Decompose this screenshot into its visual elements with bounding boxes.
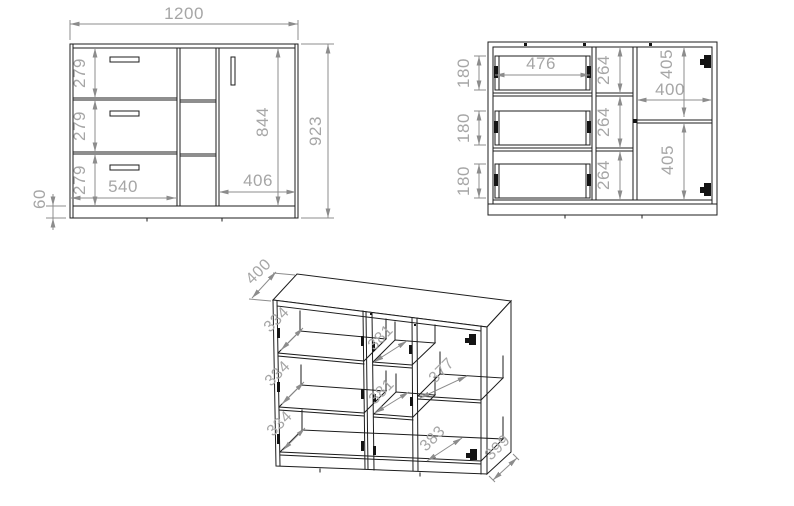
- drawer-slide-icon: [494, 121, 498, 133]
- internal-view: 180 180 180 476 264 264 264 405 405 400: [454, 42, 717, 218]
- shelf-support-icon: [410, 397, 413, 406]
- drawer-slide-icon: [494, 174, 498, 186]
- technical-drawing-canvas: 1200 923 844 406 540 279 279 279 60: [0, 0, 794, 506]
- dim-box-height-1: 180: [454, 58, 473, 88]
- fitting-dot-icon: [649, 43, 652, 46]
- hinge-icon: [470, 449, 477, 460]
- hinge-icon: [700, 187, 704, 193]
- dim-drawer-front-height-2: 279: [70, 111, 89, 141]
- dim-plinth-height: 60: [30, 189, 49, 209]
- dim-right-section-width: 400: [655, 80, 685, 99]
- dim-box-width: 476: [526, 54, 556, 73]
- internal-view-drawer-boxes: [495, 56, 590, 198]
- dim-door-width: 406: [243, 171, 273, 190]
- drawer-handle-2: [110, 111, 139, 116]
- dim-right-opening-bottom: 405: [658, 145, 677, 175]
- drawer-slide-icon: [587, 66, 591, 78]
- isometric-view-carcass: [273, 274, 511, 476]
- hinge-icon: [704, 55, 711, 68]
- dim-total-width: 1200: [164, 4, 204, 23]
- dim-top-depth: 400: [243, 256, 275, 288]
- drawer-handle-1: [110, 57, 139, 62]
- drawer-box-3: [495, 164, 590, 198]
- dim-drawer-front-width: 540: [108, 177, 138, 196]
- drawer-slide-icon: [587, 121, 591, 133]
- dim-middle-opening-2: 264: [594, 107, 613, 137]
- drawer-box-2: [495, 111, 590, 145]
- isometric-view: 400 334 334 334 381 381 377 383 399: [243, 256, 519, 482]
- shelf-support-icon: [409, 345, 412, 354]
- front-view: 1200 923 844 406 540 279 279 279 60: [30, 4, 334, 230]
- drawer-slide-icon: [494, 66, 498, 78]
- hinge-icon: [465, 338, 469, 343]
- fitting-dot-icon: [633, 119, 637, 123]
- dim-total-height: 923: [306, 116, 325, 146]
- furniture-dimension-drawing: 1200 923 844 406 540 279 279 279 60: [0, 0, 794, 506]
- fitting-dot-icon: [583, 43, 586, 46]
- fitting-dot-icon: [524, 43, 527, 46]
- dim-box-height-3: 180: [454, 166, 473, 196]
- shelf-support-icon: [373, 446, 376, 455]
- dim-middle-opening-1: 264: [594, 55, 613, 85]
- dim-right-opening-top: 405: [657, 49, 676, 79]
- hinge-icon: [469, 334, 476, 345]
- door-handle: [231, 57, 235, 85]
- dim-door-height: 844: [253, 107, 272, 137]
- hinge-icon: [466, 453, 470, 458]
- fitting-dot-icon: [370, 313, 372, 315]
- dim-box-height-2: 180: [454, 113, 473, 143]
- dim-drawer-front-height-3: 279: [70, 165, 89, 195]
- dim-middle-opening-3: 264: [594, 160, 613, 190]
- hinge-icon: [700, 59, 704, 65]
- dim-drawer-front-height-1: 279: [70, 58, 89, 88]
- drawer-slide-icon: [361, 336, 364, 346]
- fitting-dot-icon: [414, 324, 416, 326]
- hinge-icon: [704, 183, 711, 196]
- drawer-slide-icon: [587, 174, 591, 186]
- drawer-handle-3: [110, 165, 139, 170]
- drawer-slide-icon: [361, 389, 364, 399]
- drawer-slide-icon: [361, 441, 364, 451]
